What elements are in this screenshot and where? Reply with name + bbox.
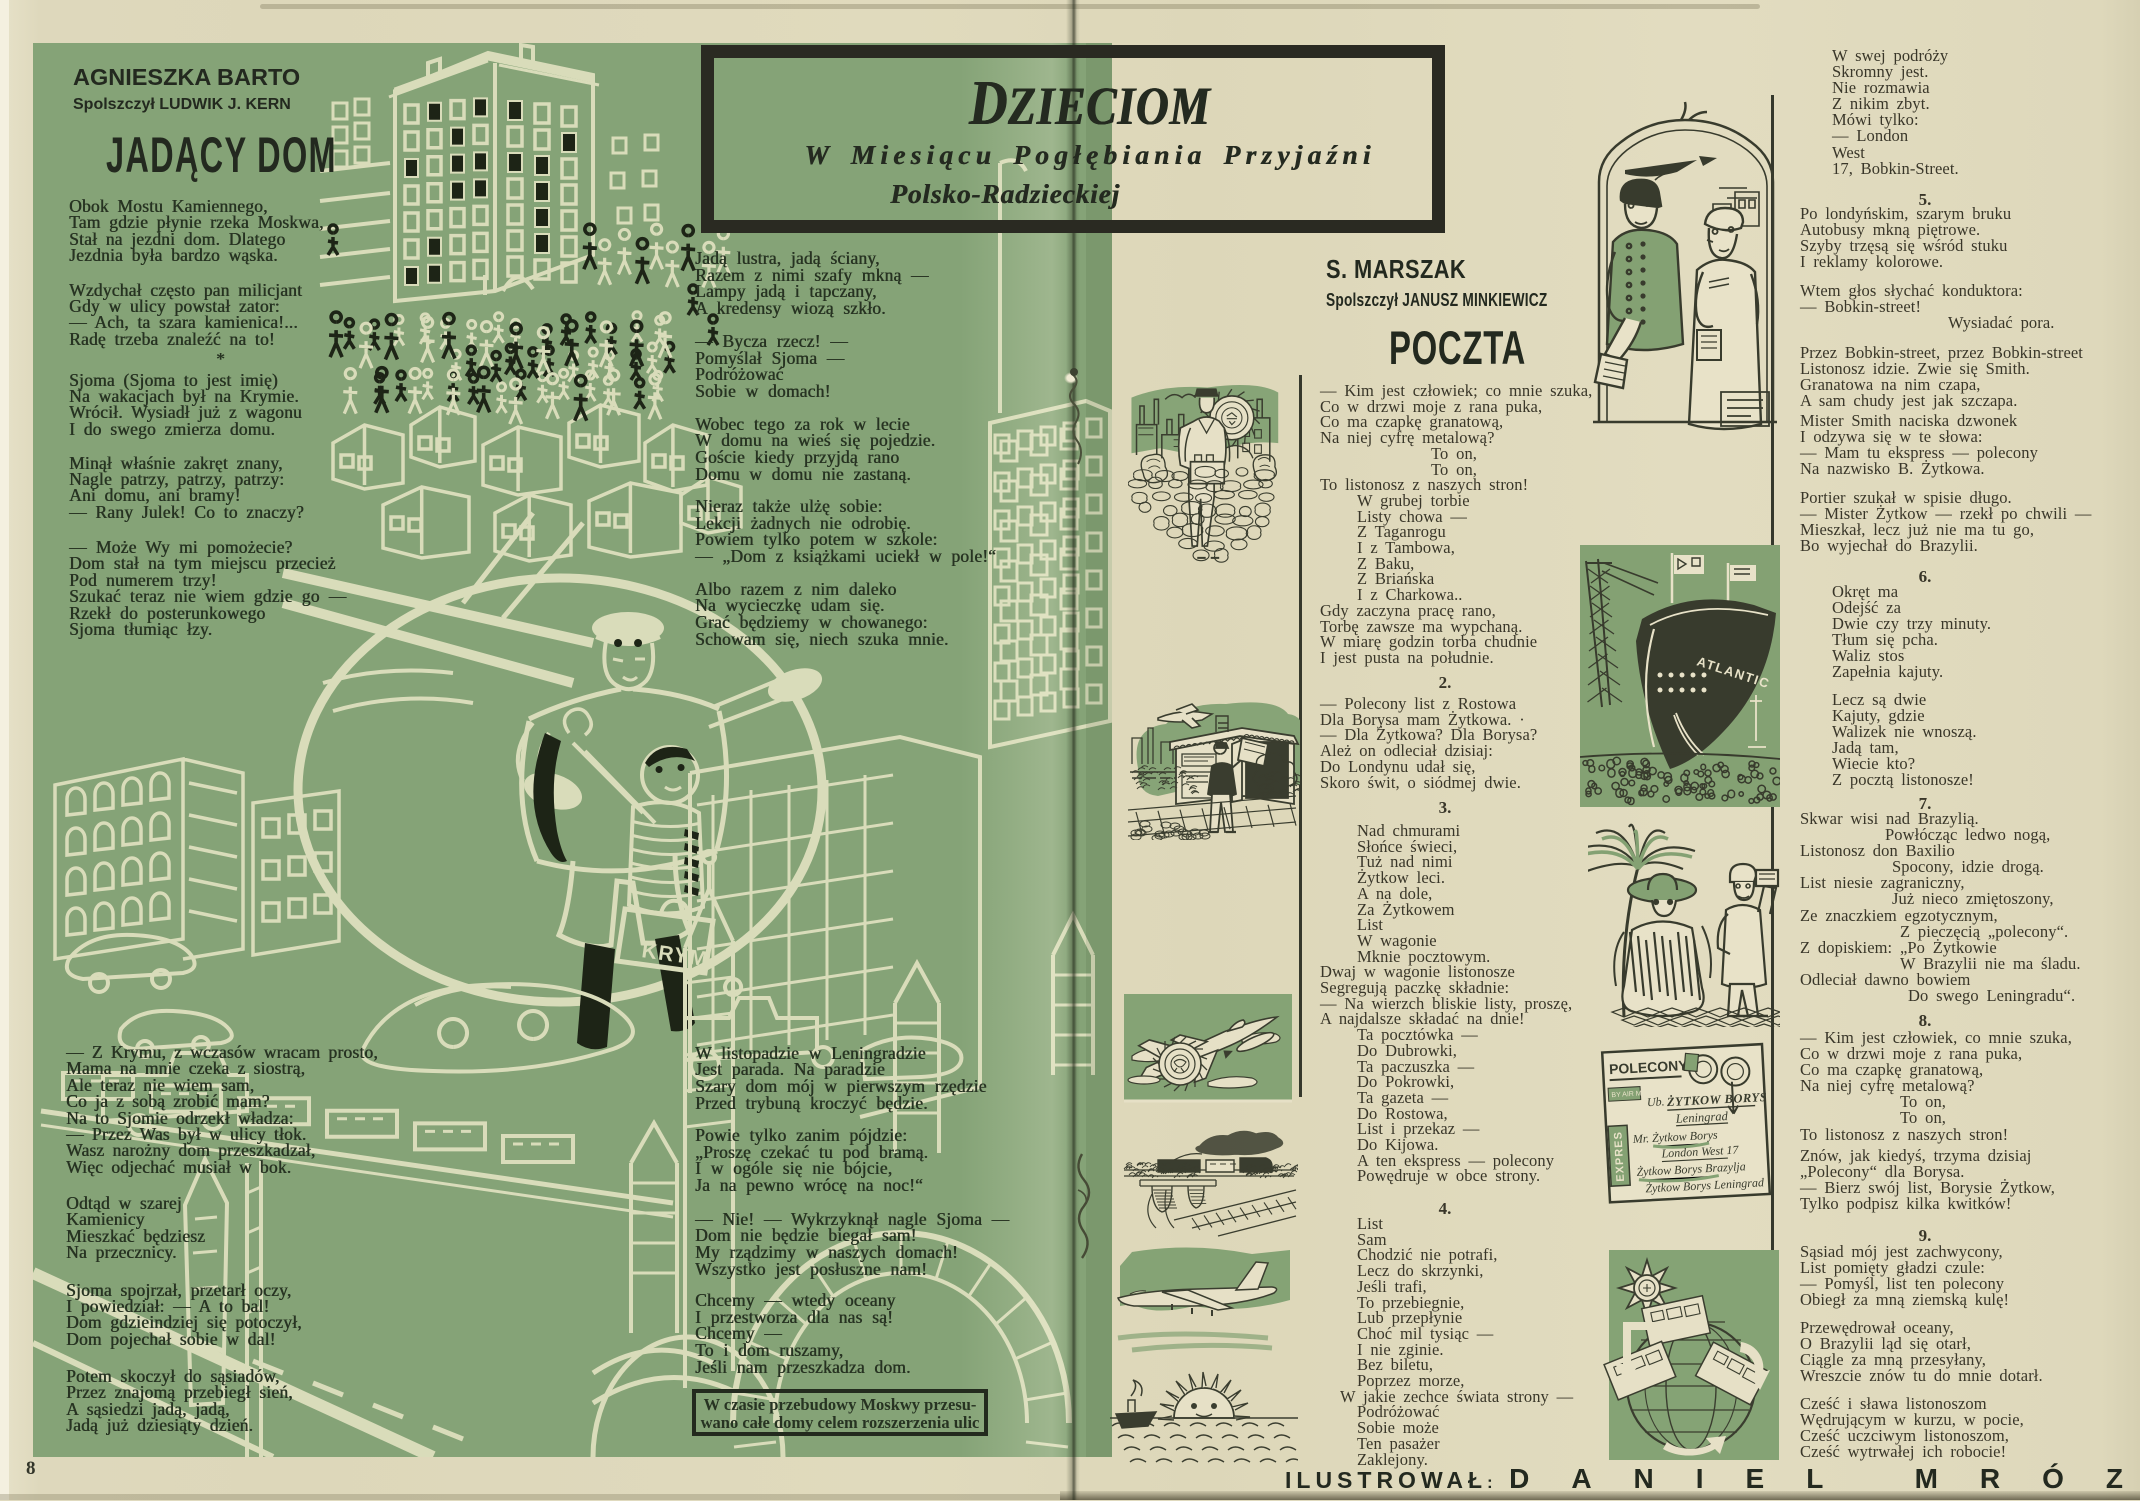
svg-text:Ub.: Ub. — [1646, 1094, 1664, 1109]
